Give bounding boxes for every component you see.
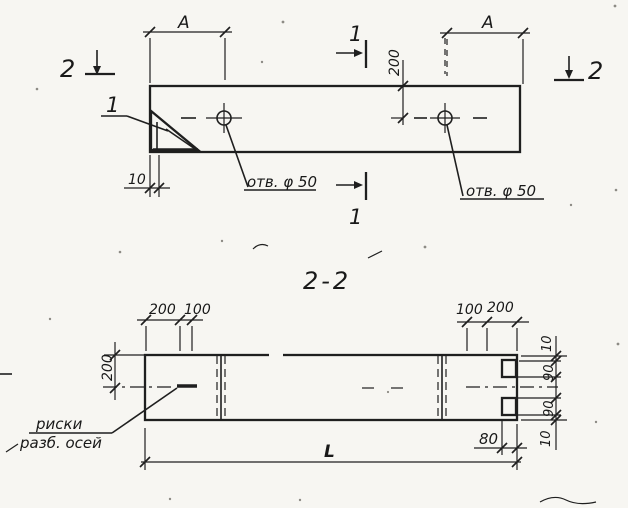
dims-right-chain: 10 90 90 10 xyxy=(518,335,567,450)
hidden-lines-left xyxy=(217,356,225,419)
dim-a-left-label: A xyxy=(177,13,190,33)
paper-specks xyxy=(0,5,619,504)
beam-outline xyxy=(150,86,520,152)
section-marker-1-bottom: 1 xyxy=(336,172,366,229)
dim-tr-200: 200 xyxy=(487,300,514,316)
hole-left xyxy=(181,103,242,133)
dim-length-label: L xyxy=(324,442,335,462)
dim-200-height-label: 200 xyxy=(100,354,116,381)
hidden-lines-right xyxy=(438,356,446,419)
section-view: 2-2 xyxy=(19,245,567,470)
dim-a-left: A xyxy=(143,13,232,83)
notch-top xyxy=(502,360,516,377)
notch-bottom xyxy=(502,398,516,415)
axis-note-line1: риски xyxy=(35,415,83,433)
dim-a-right: A xyxy=(440,13,530,84)
section-title: 2-2 xyxy=(303,267,351,295)
drawing-canvas: A A 200 10 xyxy=(0,0,628,508)
marker-2-right-label: 2 xyxy=(588,57,603,85)
hole-label-left: отв. φ 50 xyxy=(226,125,317,191)
hole-label-right: отв. φ 50 xyxy=(447,125,544,200)
dims-top-left: 200 100 xyxy=(137,302,211,351)
stray-mark xyxy=(368,251,382,258)
hole-right xyxy=(414,103,487,133)
dim-200-height: 200 xyxy=(100,342,144,400)
dim-10-label: 10 xyxy=(128,172,146,188)
hole-label-right-text: отв. φ 50 xyxy=(466,182,536,200)
dim-tl-200: 200 xyxy=(149,302,176,318)
dim-a-right-label: A xyxy=(481,13,494,33)
section-marker-2-left: 2 xyxy=(60,50,115,83)
top-view: A A 200 10 xyxy=(60,13,603,229)
section-outline xyxy=(145,355,517,420)
callout-1-label: 1 xyxy=(106,93,119,117)
technical-drawing-page: A A 200 10 xyxy=(0,0,628,508)
corner-triangle-detail xyxy=(151,111,198,151)
dim-r-10-top: 10 xyxy=(540,335,555,352)
dim-200-hole-offset: 200 xyxy=(387,38,445,125)
axis-centerlines xyxy=(103,386,558,388)
marker-2-left-label: 2 xyxy=(60,55,75,83)
dim-tl-100: 100 xyxy=(184,302,211,318)
section-marker-2-right: 2 xyxy=(554,56,603,85)
detail-callout-1: 1 xyxy=(101,93,168,131)
dim-tr-100: 100 xyxy=(456,302,483,318)
dim-10-edge: 10 xyxy=(124,155,170,197)
stray-mark xyxy=(253,245,268,249)
dim-length: L xyxy=(140,428,522,470)
right-arrow-icon xyxy=(354,181,363,189)
dim-r-10-bottom: 10 xyxy=(539,430,554,447)
dim-80-label: 80 xyxy=(479,430,498,448)
hole-label-left-text: отв. φ 50 xyxy=(247,173,317,191)
right-arrow-icon xyxy=(354,49,363,57)
dim-200-label: 200 xyxy=(387,49,403,76)
section-marker-1-top: 1 xyxy=(336,22,366,68)
dim-r-90-top: 90 xyxy=(542,364,557,381)
down-arrow-icon xyxy=(565,70,573,79)
axis-note-line2: разб. осей xyxy=(19,434,102,452)
marker-1-top-label: 1 xyxy=(349,22,362,46)
dim-r-90-bottom: 90 xyxy=(542,400,557,417)
marker-1-bottom-label: 1 xyxy=(349,205,362,229)
dims-top-right: 100 200 xyxy=(456,300,529,351)
